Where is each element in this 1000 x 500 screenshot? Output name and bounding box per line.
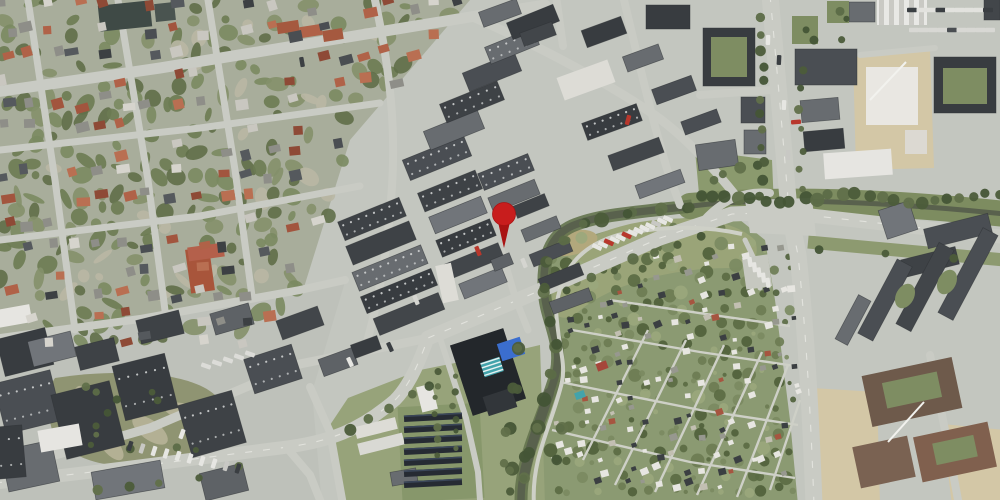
satellite-map-canvas <box>0 0 1000 500</box>
marker-head <box>493 203 516 226</box>
satellite-map[interactable] <box>0 0 1000 500</box>
